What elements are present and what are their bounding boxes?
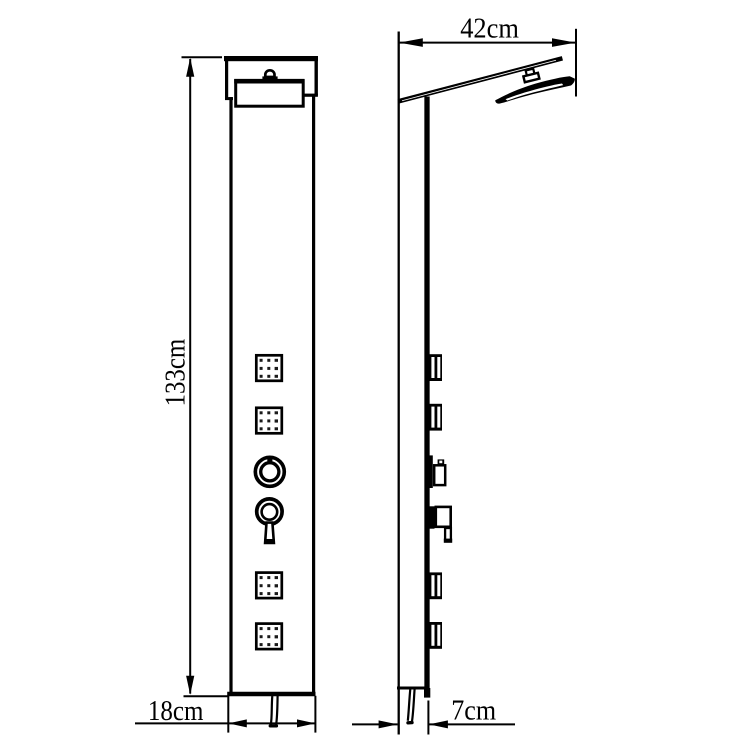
svg-text:42cm: 42cm bbox=[460, 13, 519, 44]
svg-text:7cm: 7cm bbox=[451, 695, 496, 726]
svg-text:18cm: 18cm bbox=[148, 696, 204, 727]
svg-text:133cm: 133cm bbox=[161, 339, 192, 407]
